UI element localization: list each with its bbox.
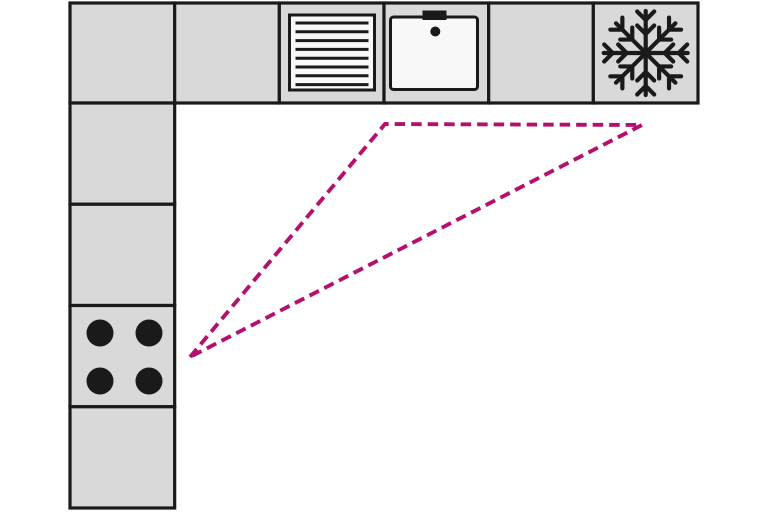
work-triangle — [190, 124, 642, 357]
burner — [136, 320, 163, 347]
floor-plan-canvas — [0, 0, 768, 512]
cabinet-cell-left-3 — [70, 204, 175, 305]
cabinet-cell-top-2 — [175, 3, 280, 103]
vent-grille-icon — [290, 15, 375, 90]
sink-tap — [423, 11, 447, 21]
sink-icon — [391, 11, 478, 90]
vent-grille-frame — [290, 15, 375, 90]
burner — [87, 320, 114, 347]
cabinet-cell-top-1 — [70, 3, 175, 103]
cabinet-run-left — [70, 103, 175, 508]
kitchen-floor-plan-diagram — [0, 0, 768, 512]
burner — [136, 368, 163, 395]
cabinet-cell-top-5 — [489, 3, 594, 103]
snowflake-icon — [604, 11, 688, 95]
burner — [87, 368, 114, 395]
cabinet-cell-left-5 — [70, 407, 175, 508]
sink-drain — [430, 27, 440, 37]
cooktop-cell — [70, 306, 175, 407]
cabinet-cell-left-2 — [70, 103, 175, 204]
